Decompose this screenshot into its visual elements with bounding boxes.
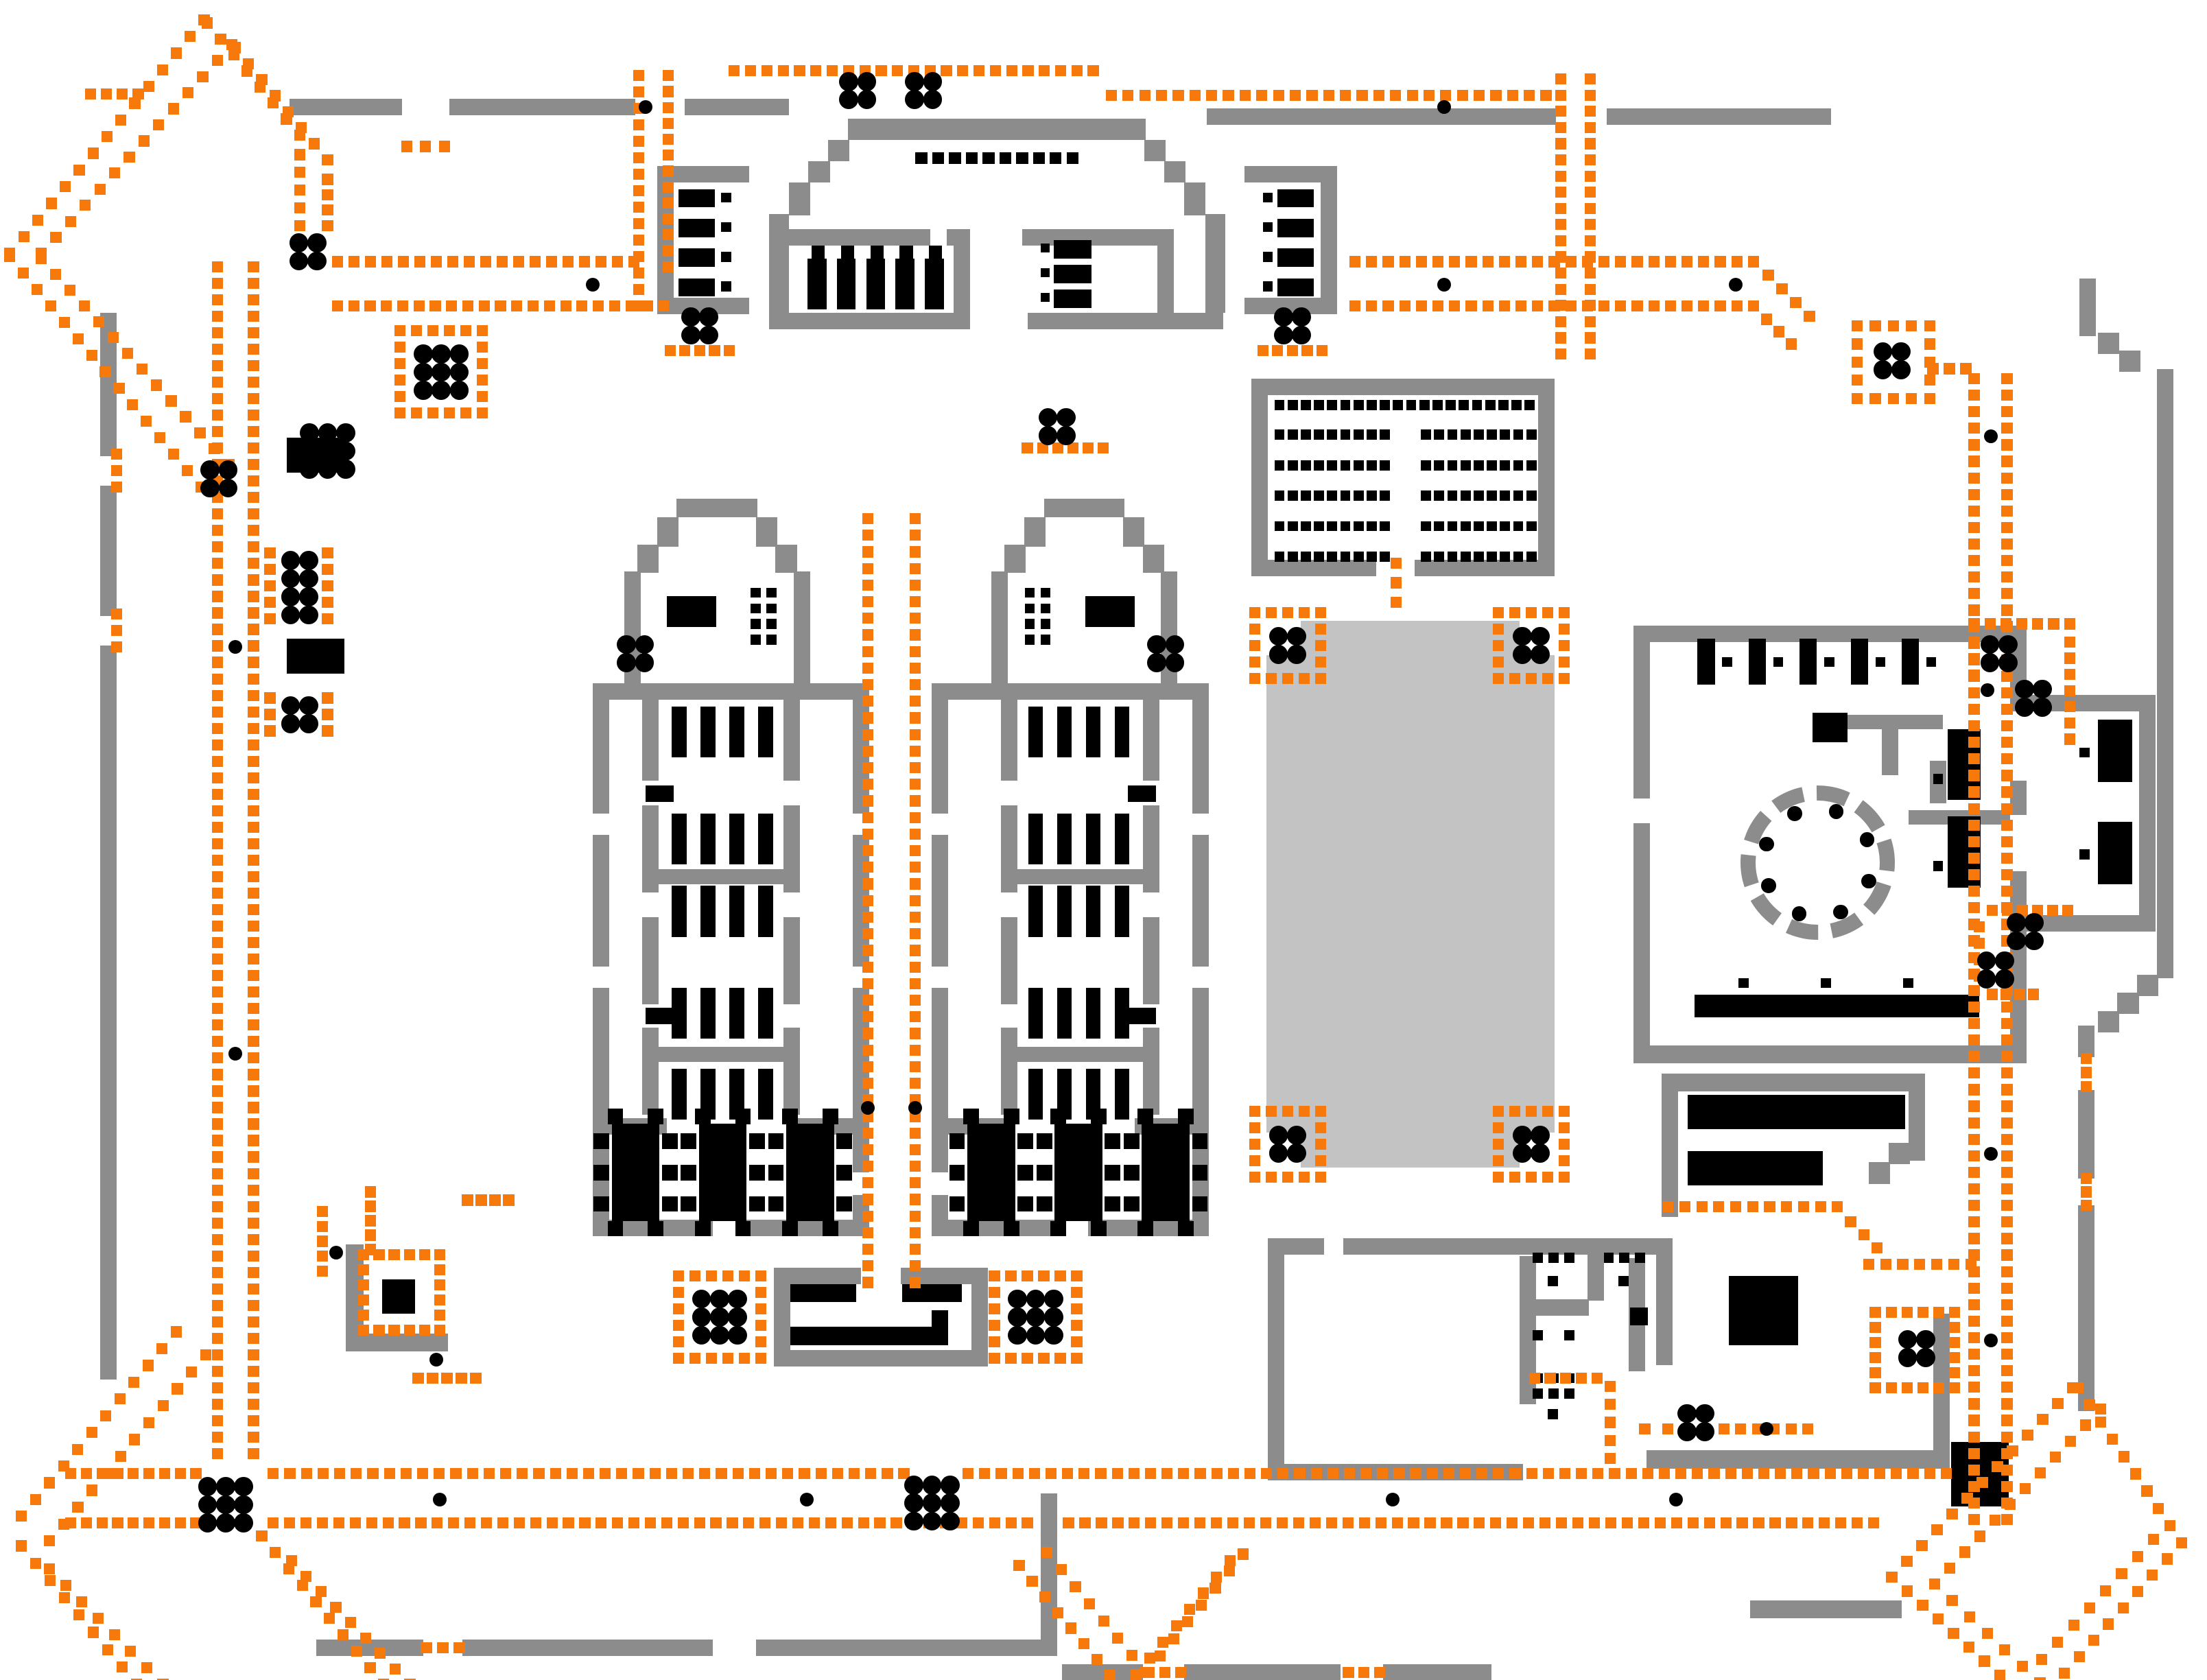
furniture-block <box>667 596 716 628</box>
path-dot <box>248 475 259 486</box>
path-dot <box>1946 1595 1957 1606</box>
path-dot <box>1946 1509 1957 1519</box>
wall <box>769 214 789 313</box>
path-dot <box>1038 1270 1049 1281</box>
path-dot <box>1410 1468 1421 1479</box>
path-dot <box>248 311 259 322</box>
seat <box>1025 635 1035 644</box>
seat <box>1301 460 1311 471</box>
path-dot <box>910 629 921 640</box>
wall <box>1633 1045 2027 1063</box>
marker-cluster <box>1287 1144 1306 1163</box>
pew <box>1115 814 1130 864</box>
path-dot <box>248 1151 259 1162</box>
path-dot <box>429 300 440 311</box>
marker-cluster <box>318 460 338 479</box>
path-dot <box>248 740 259 750</box>
path-dot <box>1968 853 1979 864</box>
path-dot <box>1315 656 1326 667</box>
path-dot <box>427 407 438 418</box>
path-dot <box>212 261 223 272</box>
path-dot <box>111 608 122 619</box>
path-dot <box>1761 313 1772 324</box>
path-dot <box>709 345 720 356</box>
seat <box>1421 490 1431 501</box>
seat <box>1902 639 1919 685</box>
path-dot <box>1585 154 1596 165</box>
path-dot <box>533 1468 544 1479</box>
path-dot <box>180 411 191 422</box>
chair <box>695 1221 711 1237</box>
path-dot <box>1732 300 1743 311</box>
path-dot <box>1194 1468 1205 1479</box>
pew <box>1057 988 1072 1039</box>
path-dot <box>399 1517 410 1528</box>
path-dot <box>1555 348 1566 359</box>
path-dot <box>862 1244 873 1255</box>
path-dot <box>248 492 259 503</box>
path-dot <box>1282 607 1293 618</box>
path-dot <box>862 1144 873 1155</box>
path-dot <box>434 1279 445 1290</box>
path-dot <box>663 213 674 224</box>
path-dot <box>1112 1468 1123 1479</box>
marker-cluster <box>2033 698 2052 717</box>
path-dot <box>2020 1483 2031 1494</box>
path-dot <box>1499 256 1510 267</box>
path-dot <box>609 300 620 311</box>
chair <box>648 1109 663 1124</box>
path-dot <box>663 134 674 145</box>
path-dot <box>1869 1352 1880 1363</box>
path-dot <box>1140 90 1150 101</box>
seat <box>1513 521 1524 532</box>
path-dot <box>248 822 259 833</box>
path-dot <box>1559 1139 1570 1150</box>
path-dot <box>2001 1134 2012 1145</box>
path-dot <box>633 169 644 180</box>
seat <box>721 252 731 261</box>
path-dot <box>388 1325 399 1336</box>
wall <box>991 571 1008 685</box>
path-dot <box>2119 1451 2129 1462</box>
path-dot <box>248 1448 259 1459</box>
path-dot <box>1605 1381 1616 1392</box>
path-dot <box>1559 1122 1570 1133</box>
path-dot <box>511 300 522 311</box>
path-dot <box>1172 90 1183 101</box>
path-dot <box>212 344 223 355</box>
path-dot <box>1841 1468 1852 1479</box>
path-dot <box>1490 1517 1501 1528</box>
path-dot <box>95 184 106 195</box>
path-dot <box>1408 1517 1419 1528</box>
column-dot <box>1787 806 1802 821</box>
seat <box>1448 490 1458 501</box>
path-dot <box>1184 1604 1195 1615</box>
pew <box>758 1069 773 1120</box>
path-dot <box>1933 1382 1944 1393</box>
seat <box>1041 604 1050 613</box>
path-dot <box>2130 1468 2141 1479</box>
path-dot <box>2001 836 2012 847</box>
path-dot <box>2095 1404 2106 1415</box>
path-dot <box>1931 1259 1942 1270</box>
path-dot <box>673 1270 684 1281</box>
seat <box>1380 552 1390 562</box>
seat <box>1722 657 1732 667</box>
marker-cluster <box>1166 653 1185 672</box>
path-dot <box>86 350 97 361</box>
path-dot <box>448 1517 459 1528</box>
path-dot <box>1605 1417 1616 1428</box>
path-dot <box>248 1168 259 1179</box>
path-dot <box>2162 1553 2173 1564</box>
path-dot <box>1968 653 1979 664</box>
path-dot <box>650 1468 661 1479</box>
path-dot <box>185 31 196 42</box>
path-dot <box>294 185 305 196</box>
path-dot <box>1968 473 1979 484</box>
seat <box>1749 639 1766 685</box>
seat <box>1434 490 1444 501</box>
path-dot <box>345 1617 356 1628</box>
path-dot <box>394 342 405 353</box>
path-dot <box>1914 1259 1925 1270</box>
path-dot <box>404 1325 415 1336</box>
path-dot <box>248 1300 259 1311</box>
path-dot <box>1901 1556 1912 1567</box>
path-dot <box>99 366 110 377</box>
seat <box>1314 490 1324 501</box>
path-dot <box>1005 1353 1016 1364</box>
path-dot <box>1071 1270 1082 1281</box>
pew <box>1028 988 1043 1039</box>
seat <box>1448 429 1458 440</box>
marker-cluster <box>414 344 433 364</box>
path-dot <box>1917 1307 1928 1318</box>
path-dot <box>1649 256 1660 267</box>
path-dot <box>1390 90 1401 101</box>
path-dot <box>1790 297 1801 308</box>
marker-cluster <box>198 1513 217 1533</box>
path-dot <box>1585 187 1596 198</box>
path-dot <box>264 564 275 575</box>
path-dot <box>1585 284 1596 295</box>
path-dot <box>1714 256 1725 267</box>
seat <box>1487 490 1497 501</box>
seat <box>1327 490 1337 501</box>
marker-cluster <box>941 1493 960 1513</box>
path-dot <box>1005 1270 1016 1281</box>
path-dot <box>862 978 873 989</box>
chair <box>1037 1133 1052 1149</box>
path-dot <box>212 855 223 866</box>
path-dot <box>910 945 921 956</box>
marker-dot <box>429 1353 443 1367</box>
path-dot <box>248 1415 259 1426</box>
marker-cluster <box>216 1513 235 1533</box>
path-dot <box>1665 300 1676 311</box>
path-dot <box>2028 989 2039 999</box>
path-dot <box>699 1468 710 1479</box>
path-dot <box>910 862 921 873</box>
path-dot <box>1282 1106 1293 1117</box>
wall <box>1633 626 1650 798</box>
path-dot <box>112 1517 123 1528</box>
marker-cluster <box>1695 1404 1714 1423</box>
marker-cluster <box>216 1495 235 1515</box>
path-dot <box>268 1517 279 1528</box>
seat <box>678 219 715 237</box>
chair <box>1004 1109 1019 1124</box>
seat <box>1354 429 1364 440</box>
furniture-block <box>1729 1276 1798 1345</box>
path-dot <box>1416 256 1427 267</box>
path-dot <box>910 613 921 624</box>
furniture-block <box>1695 995 1979 1018</box>
wall <box>2079 279 2096 336</box>
path-dot <box>248 525 259 536</box>
wall <box>1001 917 1017 1004</box>
path-dot <box>1949 1352 1960 1363</box>
wall <box>1144 140 1166 161</box>
seat <box>1275 400 1285 410</box>
path-dot <box>248 1036 259 1047</box>
path-dot <box>1225 1555 1236 1566</box>
marker-cluster <box>905 90 924 109</box>
path-dot <box>200 1349 211 1360</box>
path-dot <box>2081 1186 2092 1197</box>
path-dot <box>1266 607 1277 618</box>
path-dot <box>168 449 179 460</box>
path-dot <box>212 986 223 997</box>
chair <box>735 1109 751 1124</box>
seat <box>1461 429 1471 440</box>
marker-cluster <box>281 587 300 606</box>
path-dot <box>431 256 442 267</box>
path-dot <box>1465 256 1476 267</box>
path-dot <box>794 65 805 76</box>
path-dot <box>1968 539 1979 549</box>
furniture-block <box>287 639 344 673</box>
path-dot <box>1156 90 1167 101</box>
path-dot <box>212 789 223 800</box>
path-dot <box>2022 1430 2033 1441</box>
path-dot <box>1072 65 1083 76</box>
path-dot <box>1515 256 1526 267</box>
chair <box>608 1221 624 1237</box>
seat <box>1526 460 1537 471</box>
path-dot <box>30 1558 41 1569</box>
path-dot <box>1315 607 1326 618</box>
path-dot <box>1542 1106 1553 1117</box>
path-dot <box>256 1530 267 1541</box>
path-dot <box>910 1128 921 1139</box>
path-dot <box>1949 1367 1960 1378</box>
marker-dot <box>329 1246 343 1259</box>
path-dot <box>1631 256 1642 267</box>
path-dot <box>576 300 587 311</box>
path-dot <box>2017 1661 2028 1672</box>
path-dot <box>745 65 756 76</box>
path-dot <box>1013 1468 1024 1479</box>
path-dot <box>816 1468 827 1479</box>
path-dot <box>2052 1398 2063 1409</box>
path-dot <box>1293 1517 1304 1528</box>
marker-cluster <box>710 1308 729 1327</box>
path-dot <box>16 1540 27 1551</box>
path-dot <box>633 136 644 147</box>
marker-cluster <box>1531 645 1550 664</box>
path-dot <box>1622 1517 1633 1528</box>
seat <box>1500 552 1510 562</box>
path-dot <box>1374 1667 1385 1678</box>
path-dot <box>910 580 921 591</box>
path-dot <box>1249 640 1260 651</box>
path-dot <box>1266 1172 1277 1183</box>
seat <box>1275 521 1285 532</box>
path-dot <box>1968 1117 1979 1128</box>
path-dot <box>86 1427 97 1438</box>
path-dot <box>1852 393 1863 404</box>
marker-cluster <box>281 714 300 733</box>
seat <box>1380 400 1390 410</box>
path-dot <box>324 1613 335 1624</box>
path-dot <box>212 1267 223 1278</box>
path-dot <box>497 1517 508 1528</box>
path-dot <box>1987 989 1998 999</box>
path-dot <box>1159 1667 1170 1678</box>
path-dot <box>322 613 333 624</box>
path-dot <box>318 1468 329 1479</box>
path-dot <box>1572 1517 1583 1528</box>
pew <box>672 1069 687 1120</box>
wall <box>2119 351 2140 372</box>
path-dot <box>1968 604 1979 615</box>
path-dot <box>1046 1468 1057 1479</box>
path-dot <box>665 345 676 356</box>
path-dot <box>663 245 674 256</box>
marker-cluster <box>1874 360 1893 379</box>
path-dot <box>1106 90 1117 101</box>
seat <box>1000 152 1011 164</box>
path-dot <box>1802 1423 1813 1434</box>
path-dot <box>1493 656 1504 667</box>
path-dot <box>910 646 921 657</box>
seat <box>721 222 731 232</box>
path-dot <box>1968 670 1979 681</box>
path-dot <box>910 845 921 856</box>
path-dot <box>16 1511 27 1522</box>
path-dot <box>256 74 267 85</box>
path-dot <box>212 921 223 932</box>
path-dot <box>882 1468 893 1479</box>
wall <box>1192 835 1209 967</box>
path-dot <box>1555 235 1566 246</box>
path-dot <box>309 138 320 149</box>
path-dot <box>248 377 259 388</box>
path-dot <box>1968 618 1979 629</box>
path-dot <box>1592 1468 1603 1479</box>
path-dot <box>1968 770 1979 781</box>
path-dot <box>683 1468 694 1479</box>
path-dot <box>910 1045 921 1056</box>
path-dot <box>212 426 223 437</box>
path-dot <box>1968 390 1979 401</box>
path-dot <box>470 1373 481 1384</box>
path-dot <box>663 261 674 272</box>
path-dot <box>1145 1517 1156 1528</box>
path-dot <box>358 1279 369 1290</box>
seat <box>1301 490 1311 501</box>
path-dot <box>1968 1034 1979 1045</box>
chair <box>1124 1133 1140 1149</box>
table <box>699 1124 747 1221</box>
marker-cluster <box>1695 1422 1714 1441</box>
path-dot <box>724 345 735 356</box>
path-dot <box>475 1194 486 1205</box>
path-dot <box>595 1517 606 1528</box>
seat <box>1421 521 1431 532</box>
path-dot <box>1244 1468 1255 1479</box>
path-dot <box>560 300 571 311</box>
marker-cluster <box>1147 653 1166 672</box>
path-dot <box>322 564 333 575</box>
path-dot <box>248 723 259 734</box>
furniture-block <box>2079 849 2090 860</box>
path-dot <box>414 300 425 311</box>
path-dot <box>1400 300 1411 311</box>
path-dot <box>212 1135 223 1146</box>
path-dot <box>1675 1468 1686 1479</box>
path-dot <box>447 256 458 267</box>
seat <box>1526 490 1537 501</box>
marker-cluster <box>699 326 718 345</box>
marker-cluster <box>1531 1126 1550 1145</box>
path-dot <box>1585 251 1596 262</box>
marker-cluster <box>1274 326 1293 345</box>
path-dot <box>109 1629 120 1640</box>
path-dot <box>358 1264 369 1275</box>
seat <box>1288 460 1298 471</box>
path-dot <box>1968 1100 1979 1111</box>
seat <box>1474 552 1484 562</box>
path-dot <box>1721 1517 1732 1528</box>
seat <box>1697 639 1714 685</box>
path-dot <box>159 1468 170 1479</box>
path-dot <box>1493 640 1504 651</box>
pew <box>729 988 744 1039</box>
path-dot <box>2064 685 2075 696</box>
path-dot <box>81 1517 92 1528</box>
path-dot <box>439 141 450 152</box>
path-dot <box>2001 373 2012 384</box>
path-dot <box>1968 1167 1979 1178</box>
path-dot <box>381 300 392 311</box>
path-dot <box>477 375 488 386</box>
path-dot <box>1688 1517 1699 1528</box>
path-dot <box>495 300 506 311</box>
path-dot <box>64 285 75 296</box>
path-dot <box>1499 300 1510 311</box>
path-dot <box>1704 1517 1715 1528</box>
wall <box>1415 560 1555 576</box>
path-dot <box>1585 219 1596 230</box>
path-dot <box>1465 300 1476 311</box>
path-dot <box>862 779 873 790</box>
path-dot <box>248 344 259 355</box>
